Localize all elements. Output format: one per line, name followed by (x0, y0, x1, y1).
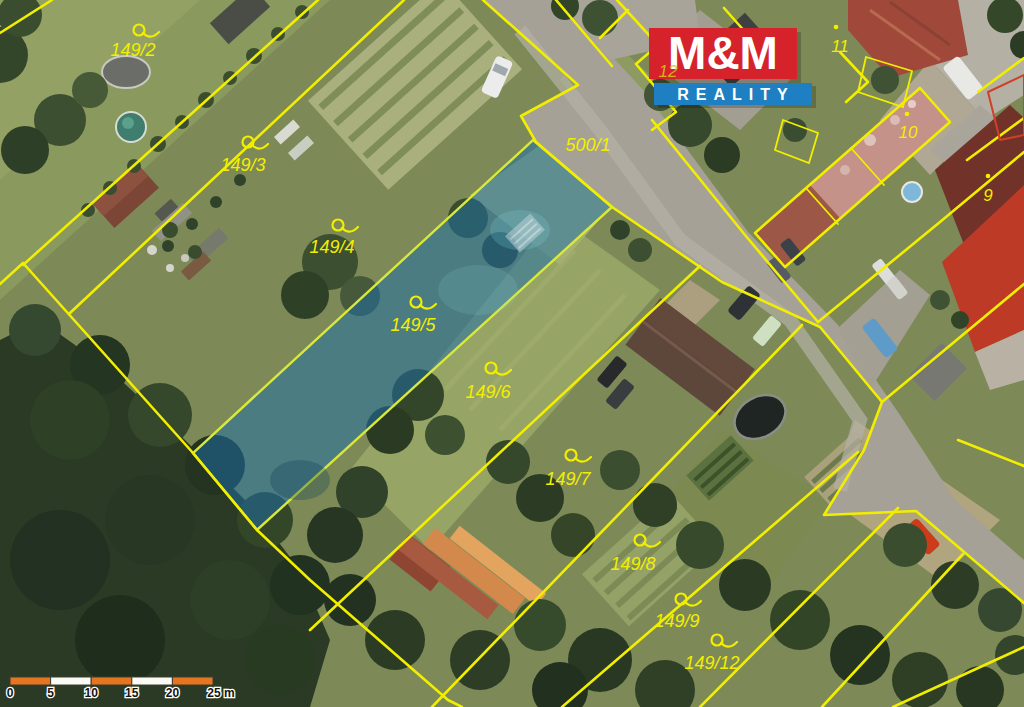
scale-bar-tick: 25 m (207, 686, 234, 700)
parcel-number: 149/9 (654, 611, 699, 631)
scale-bar-tick: 20 (166, 686, 180, 700)
scale-bar-tick: 10 (85, 686, 99, 700)
building-number: 9 (983, 186, 993, 205)
covered-parcel-label: 12 (659, 62, 678, 81)
building-definition-dot (905, 112, 910, 117)
scale-bar-segment (91, 677, 132, 685)
scale-bar-segment (172, 677, 213, 685)
cadastral-aerial-map[interactable]: 149/2149/3149/4149/5149/6149/7149/8149/9… (0, 0, 1024, 707)
parcel-number: 149/12 (684, 653, 739, 673)
parcel-number: 149/4 (309, 237, 354, 257)
building-number: 10 (899, 123, 918, 142)
building-definition-dot (986, 174, 991, 179)
building-number: 11 (831, 37, 849, 56)
scale-bar-segment (51, 677, 92, 685)
parcel-number: 149/2 (110, 40, 155, 60)
scale-bar-tick: 0 (7, 686, 14, 700)
scale-bar-tick: 15 (125, 686, 139, 700)
parcel-number: 149/7 (545, 469, 591, 489)
parcel-number: 149/6 (465, 382, 511, 402)
logo-mm-text: M&M (668, 27, 778, 79)
parcel-number: 149/3 (220, 155, 265, 175)
scale-bar-tick: 5 (47, 686, 54, 700)
scale-bar-segment (10, 677, 51, 685)
road-parcel-label: 500/1 (565, 135, 610, 155)
building-definition-dot (834, 25, 839, 30)
logo-reality-text: REALITY (677, 86, 794, 103)
parcel-number: 149/8 (610, 554, 655, 574)
parcel-number: 149/5 (390, 315, 436, 335)
scale-bar-segment (132, 677, 173, 685)
